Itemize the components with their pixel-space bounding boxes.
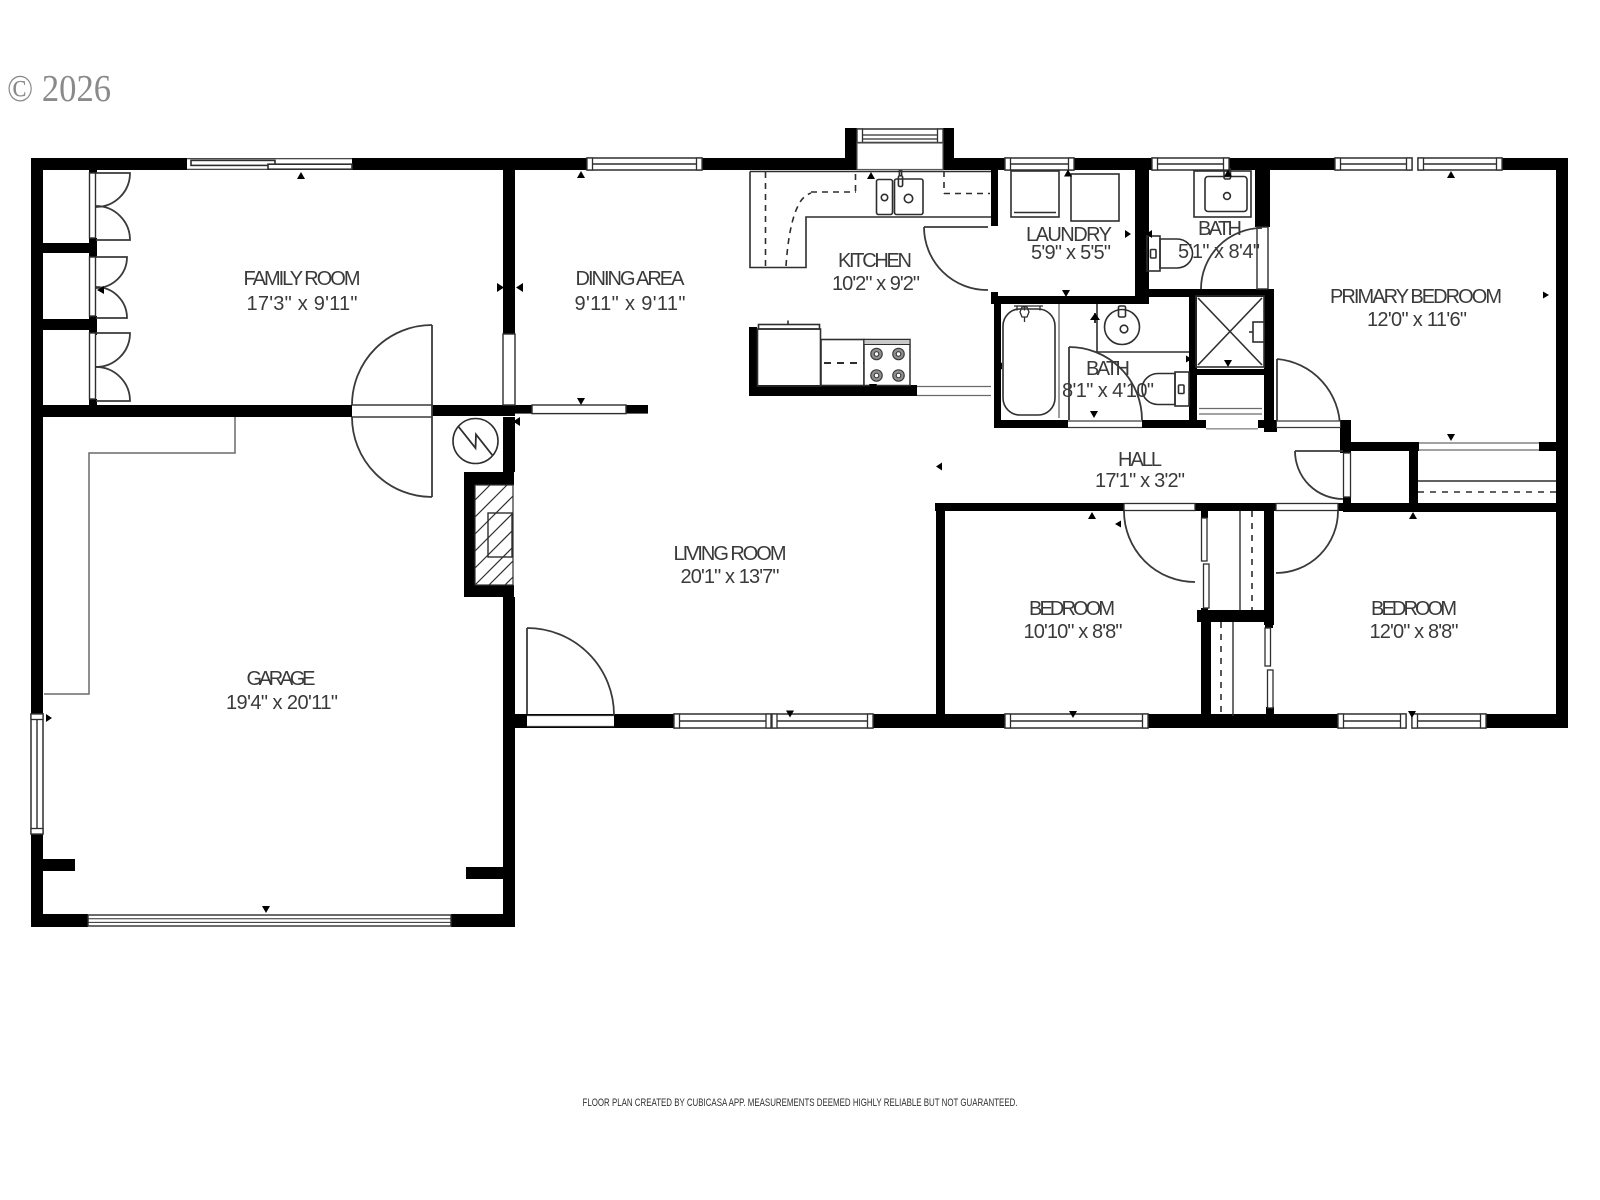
svg-text:5'9" x 5'5": 5'9" x 5'5"	[1031, 242, 1111, 264]
svg-text:GARAGE: GARAGE	[247, 668, 316, 690]
svg-text:17'3" x 9'11": 17'3" x 9'11"	[247, 293, 358, 315]
svg-text:12'0" x 8'8": 12'0" x 8'8"	[1370, 621, 1459, 643]
svg-text:LIVING ROOM: LIVING ROOM	[674, 543, 787, 565]
svg-text:17'1" x 3'2": 17'1" x 3'2"	[1095, 470, 1185, 492]
svg-text:8'1" x 4'10": 8'1" x 4'10"	[1062, 380, 1154, 402]
svg-text:BEDROOM: BEDROOM	[1029, 598, 1115, 620]
svg-text:12'0" x 11'6": 12'0" x 11'6"	[1367, 309, 1467, 331]
svg-text:10'10" x 8'8": 10'10" x 8'8"	[1024, 621, 1123, 643]
svg-text:© 2026: © 2026	[7, 68, 111, 110]
svg-text:9'11" x 9'11": 9'11" x 9'11"	[575, 293, 686, 315]
svg-text:BEDROOM: BEDROOM	[1371, 598, 1457, 620]
svg-text:KITCHEN: KITCHEN	[838, 250, 912, 272]
svg-text:19'4" x 20'11": 19'4" x 20'11"	[226, 692, 338, 714]
svg-text:BATH: BATH	[1198, 218, 1242, 240]
svg-text:FAMILY ROOM: FAMILY ROOM	[244, 268, 361, 290]
svg-text:PRIMARY BEDROOM: PRIMARY BEDROOM	[1330, 286, 1502, 308]
svg-text:HALL: HALL	[1118, 449, 1162, 471]
svg-text:BATH: BATH	[1086, 358, 1130, 380]
svg-text:DINING AREA: DINING AREA	[576, 268, 686, 290]
svg-text:5'1" x 8'4": 5'1" x 8'4"	[1178, 241, 1260, 263]
svg-text:FLOOR PLAN CREATED BY CUBICASA: FLOOR PLAN CREATED BY CUBICASA APP. MEAS…	[583, 1097, 1018, 1109]
svg-text:10'2" x 9'2": 10'2" x 9'2"	[832, 273, 920, 295]
svg-text:20'1" x 13'7": 20'1" x 13'7"	[681, 566, 780, 588]
